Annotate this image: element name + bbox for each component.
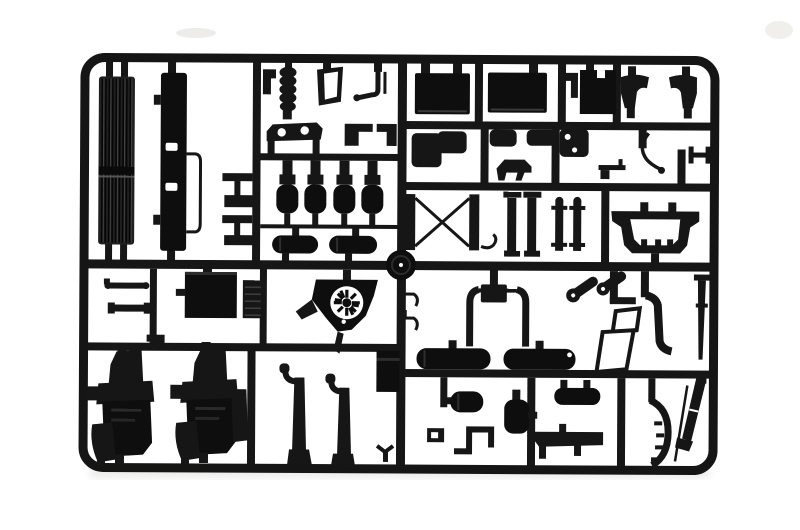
part-mirror-arm bbox=[353, 62, 385, 102]
part-window-frame bbox=[317, 62, 343, 106]
part-z-step-bracket bbox=[345, 124, 373, 146]
part-fuel-tank-2 bbox=[503, 341, 575, 370]
part-rod-grip bbox=[598, 159, 625, 179]
part-x-crossmember bbox=[405, 194, 479, 250]
part-pad-1 bbox=[490, 129, 517, 146]
part-engine-block-1 bbox=[86, 343, 155, 465]
part-ribbed-plate bbox=[243, 280, 263, 318]
part-clamp-bracket bbox=[427, 428, 444, 442]
part-corner-bracket bbox=[377, 124, 397, 146]
part-horizontal-tanks bbox=[272, 227, 377, 262]
part-exhaust-u-assembly bbox=[470, 270, 526, 346]
part-fuel-tank-1 bbox=[416, 340, 490, 369]
part-v-clip bbox=[377, 446, 393, 462]
part-channel-pair bbox=[503, 192, 541, 257]
part-corner-bracket-small bbox=[263, 69, 276, 94]
part-radiator-grille bbox=[98, 61, 135, 260]
part-air-filter-bellows bbox=[279, 61, 296, 119]
part-wiper-arm-1 bbox=[104, 278, 150, 289]
part-hook bbox=[481, 234, 496, 247]
air-tank-1 bbox=[276, 184, 298, 213]
horizontal-tank-1 bbox=[272, 235, 318, 253]
part-stack-rod bbox=[694, 275, 710, 360]
part-notched-panel bbox=[580, 63, 616, 114]
part-leaf-spring-pair bbox=[551, 197, 585, 251]
part-curved-wire bbox=[642, 133, 665, 174]
part-h-bracket bbox=[689, 147, 711, 164]
part-exhaust-pipe-1 bbox=[279, 363, 313, 465]
part-diagonal-stack bbox=[675, 375, 706, 461]
part-engine-block-2 bbox=[170, 342, 239, 464]
part-j-channel bbox=[646, 295, 672, 351]
part-muffler-1 bbox=[442, 391, 483, 412]
runner-h3 bbox=[400, 369, 711, 379]
part-walking-beam bbox=[267, 122, 323, 155]
part-pad-2 bbox=[527, 130, 556, 146]
part-panel-1 bbox=[415, 63, 470, 114]
part-bumper-bar bbox=[153, 61, 201, 262]
part-gearbox-block bbox=[376, 351, 399, 392]
air-tank-hangers bbox=[279, 160, 380, 185]
part-panel-2 bbox=[488, 63, 547, 112]
part-air-tanks bbox=[276, 160, 383, 226]
part-roller-1 bbox=[563, 273, 601, 305]
air-tank-4 bbox=[361, 185, 383, 214]
part-roof-panel bbox=[176, 266, 237, 318]
runner-v-bottomleft bbox=[247, 349, 256, 464]
part-step-bracket-1 bbox=[222, 173, 254, 207]
runner-h-thin bbox=[260, 224, 399, 229]
air-tank-3 bbox=[333, 185, 355, 214]
part-mudguard-right bbox=[669, 66, 697, 118]
part-exhaust-pipe-2 bbox=[325, 374, 355, 466]
sprue-photo bbox=[0, 0, 800, 530]
part-fan-shroud bbox=[296, 269, 378, 353]
part-step-bracket-2 bbox=[222, 215, 254, 245]
part-wheel-disc bbox=[386, 250, 416, 280]
air-tank-2 bbox=[304, 184, 326, 213]
part-mudguard-left bbox=[621, 66, 649, 118]
part-plate-two-holes bbox=[560, 129, 589, 157]
part-floor-bracket bbox=[412, 131, 467, 167]
engine-2-side-plate bbox=[231, 389, 248, 442]
part-wiper-arm-2 bbox=[108, 302, 151, 313]
sprue-illustration bbox=[0, 0, 800, 530]
part-dog-bracket bbox=[496, 160, 531, 181]
part-side-skirt bbox=[533, 424, 603, 459]
runner-h-centersub bbox=[259, 153, 400, 161]
part-mudflap-arch bbox=[611, 202, 699, 264]
part-wheel-arch bbox=[648, 378, 668, 465]
part-muffler-3 bbox=[554, 380, 600, 405]
part-s-pipe bbox=[454, 429, 491, 451]
